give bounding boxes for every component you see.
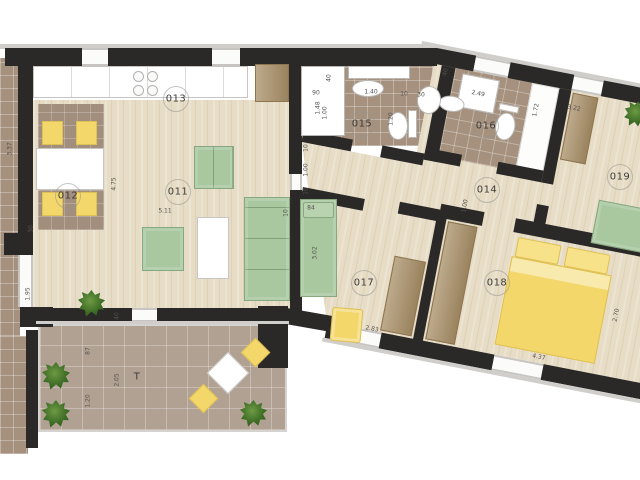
dimension-text: 10 [303,144,310,152]
room-label-T: T [134,372,141,383]
armchair-green [142,227,184,271]
room-label-011: 011 [168,187,189,198]
room-label-017: 017 [354,278,375,289]
dimension-text: 10 [303,187,310,195]
dimension-text: 1.20 [85,394,92,407]
dimension-text: 10 [283,209,290,217]
dimension-text: 1.48 [315,101,322,114]
room-label-015: 015 [352,119,373,130]
top-wall-a [5,48,82,66]
dimension-text: 40 [326,74,333,82]
dimension-text: 10 [400,91,408,98]
neighbour-terrace-lower [0,336,28,454]
dimension-text: 4.75 [111,177,118,190]
shower-bath1 [301,66,345,136]
dimension-text: 87 [85,347,92,355]
kitchen-cabinet [255,64,289,102]
armchair-yellow-bed1 [330,307,364,344]
terrace-door [132,308,157,322]
dining-chair [76,121,97,145]
room-label-019: 019 [610,172,631,183]
left-wall-upper [18,62,33,233]
dimension-text: 5.11 [158,208,171,215]
sofa-small [194,146,234,189]
dimension-text: 30 [417,92,425,99]
left-wall-step [4,233,33,255]
room-label-018: 018 [487,278,508,289]
burner-icon [133,85,144,96]
room-label-012: 012 [58,191,79,202]
neighbour-terrace-strip [0,58,20,336]
room-label-014: 014 [477,185,498,196]
coffee-table [197,217,229,279]
dimension-text: 1.40 [364,89,377,96]
floor-plan: 402.491.723.222.704.37 [0,0,640,480]
burner-icon [147,71,158,82]
window-kitchen2 [212,48,240,66]
dimension-text: 1.00 [303,163,310,176]
dimension-text: 3.37 [7,142,14,155]
dimension-text: 40 [114,312,121,320]
dimension-text: 2.05 [114,373,121,386]
south-sill [36,321,289,324]
dimension-text: 3.02 [312,246,319,259]
burner-icon [133,71,144,82]
door-bed1 [290,174,302,190]
top-wall-b [108,48,212,66]
bath1-shelf [348,66,410,79]
toilet-tank-bath1 [408,110,417,138]
dimension-text: 30 [28,225,35,233]
dining-chair [42,121,63,145]
double-bed-bed2 [494,256,611,364]
room-label-013: 013 [166,94,187,105]
terrace-left-wall [26,330,38,448]
room-label-016: 016 [476,121,497,132]
dimension-text: 40 [441,68,449,77]
dimension-text: 1.00 [322,106,329,119]
dimension-text: 1.20 [388,112,395,125]
south-wall-b [157,308,258,322]
window-kitchen [82,48,108,66]
burner-icon [147,85,158,96]
dimension-text: 84 [307,205,315,212]
dimension-text: 1.95 [25,287,32,300]
kitchen-counter [33,66,248,98]
dimension-text: 90 [312,90,320,97]
